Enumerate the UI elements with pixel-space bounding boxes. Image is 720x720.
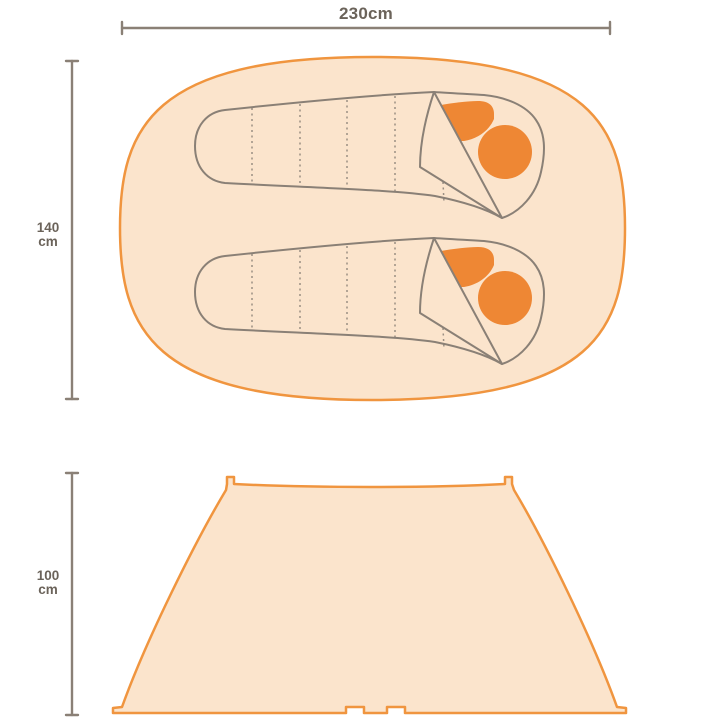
depth-dimension-unit: cm	[26, 235, 70, 249]
depth-dimension-label: 140 cm	[26, 221, 70, 249]
depth-dimension-value: 140	[26, 221, 70, 235]
height-dimension-label: 100 cm	[26, 569, 70, 597]
width-dimension-label: 230cm	[286, 4, 446, 24]
tent-side-view	[113, 477, 626, 713]
height-dimension-value: 100	[26, 569, 70, 583]
tent-dimensions-diagram	[0, 0, 720, 720]
height-dimension-unit: cm	[26, 583, 70, 597]
